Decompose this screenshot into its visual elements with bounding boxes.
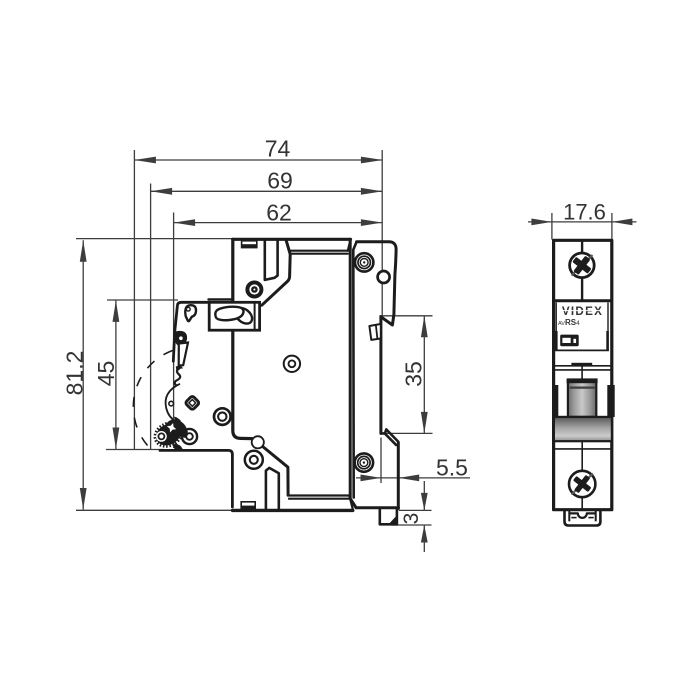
svg-text:69: 69 bbox=[267, 168, 293, 194]
svg-text:35: 35 bbox=[401, 361, 427, 387]
svg-text:81.2: 81.2 bbox=[62, 351, 88, 396]
svg-text:62: 62 bbox=[266, 200, 292, 226]
svg-text:3: 3 bbox=[400, 513, 423, 525]
svg-text:74: 74 bbox=[265, 136, 291, 162]
svg-text:VIDEX: VIDEX bbox=[562, 305, 603, 318]
svg-text:5.5: 5.5 bbox=[436, 455, 468, 481]
svg-text:45: 45 bbox=[93, 361, 119, 387]
svg-text:17.6: 17.6 bbox=[563, 199, 606, 224]
